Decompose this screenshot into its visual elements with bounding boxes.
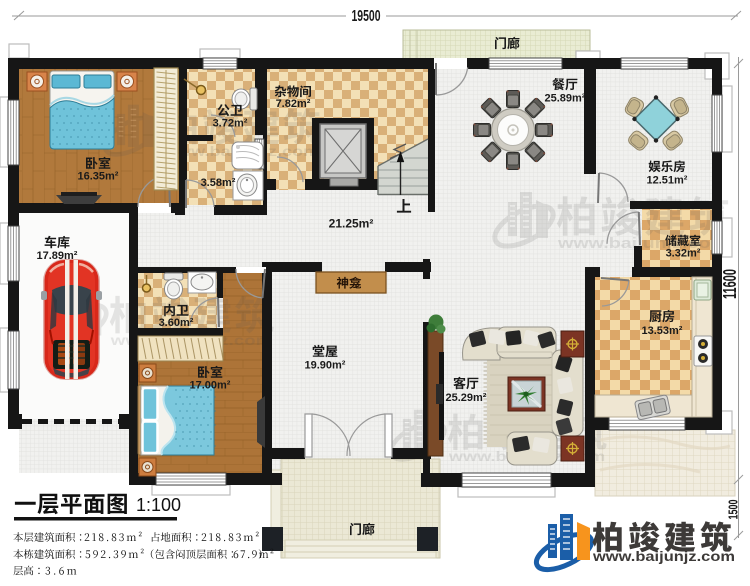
svg-text:3.58m²: 3.58m² xyxy=(201,177,236,189)
svg-text:3.60m²: 3.60m² xyxy=(159,317,194,329)
svg-text:7.82m²: 7.82m² xyxy=(276,98,311,110)
svg-text:3.72m²: 3.72m² xyxy=(213,118,248,130)
svg-text:19.90m²: 19.90m² xyxy=(305,360,346,372)
svg-text:www.baijunjz.com: www.baijunjz.com xyxy=(557,235,728,252)
svg-text:16.35m²: 16.35m² xyxy=(78,171,119,183)
svg-text:3.32m²: 3.32m² xyxy=(666,248,701,260)
svg-text:17.89m²: 17.89m² xyxy=(37,250,78,262)
svg-text:19500: 19500 xyxy=(352,8,381,25)
svg-text:www.baijunjz.com: www.baijunjz.com xyxy=(592,549,735,564)
svg-text:25.89m²: 25.89m² xyxy=(545,93,586,105)
svg-text:1500: 1500 xyxy=(727,499,741,519)
svg-text:21.25m²: 21.25m² xyxy=(329,217,374,231)
svg-text:13.53m²: 13.53m² xyxy=(642,325,683,337)
svg-text:25.29m²: 25.29m² xyxy=(446,392,487,404)
svg-text:12.51m²: 12.51m² xyxy=(647,175,688,187)
svg-text:17.00m²: 17.00m² xyxy=(190,380,231,392)
svg-text:11600: 11600 xyxy=(720,269,740,299)
svg-text:1:100: 1:100 xyxy=(136,495,181,515)
